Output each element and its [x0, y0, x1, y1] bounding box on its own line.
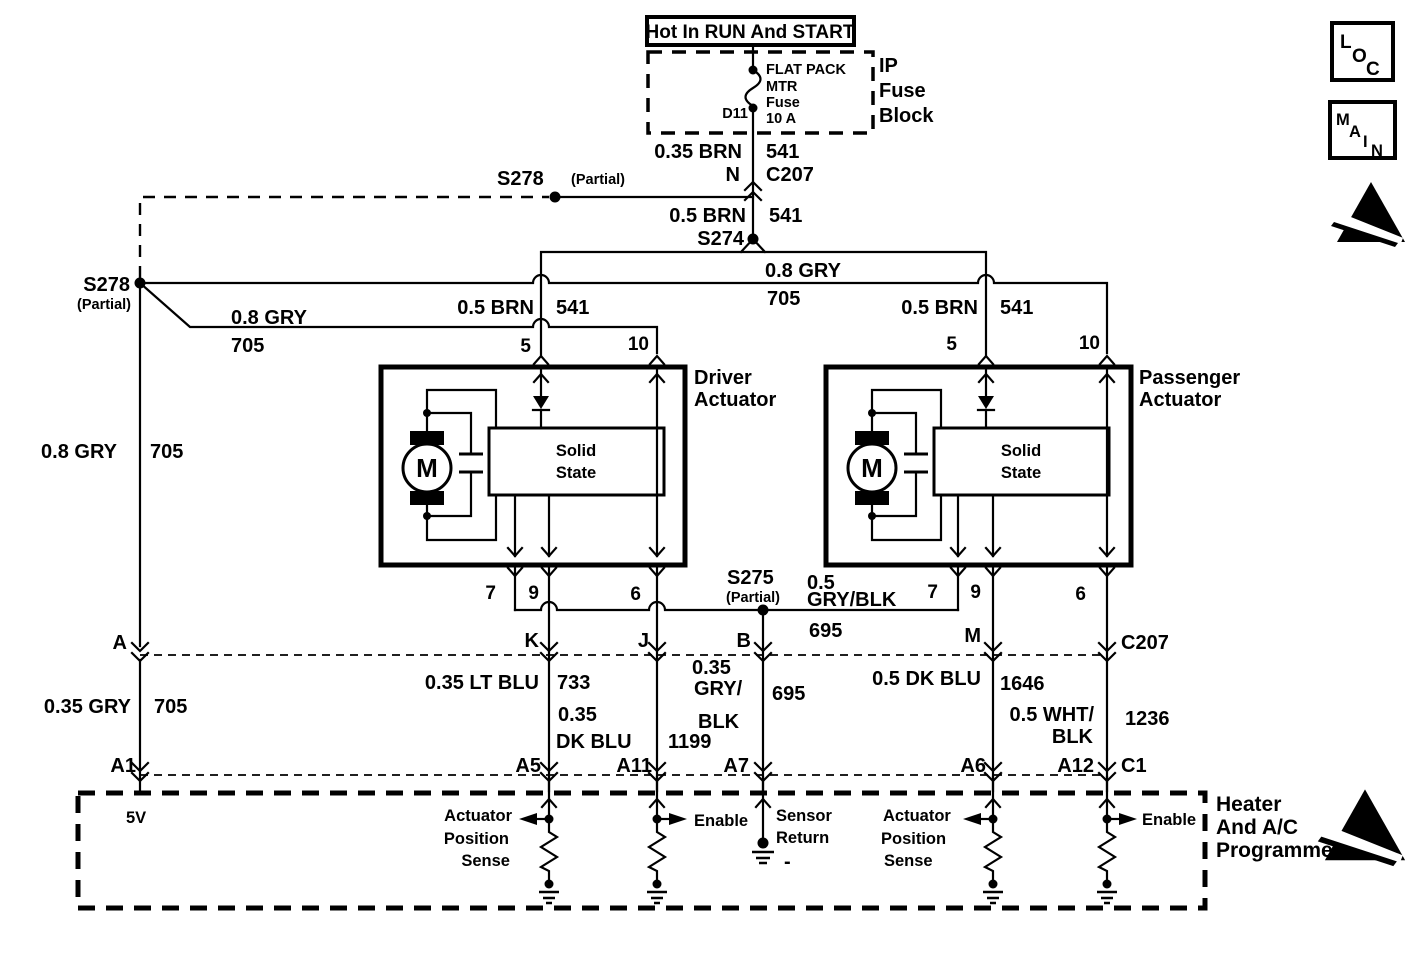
label-k-color: 0.35 LT BLU: [425, 672, 539, 694]
pass-pin7-label: 7: [927, 582, 938, 603]
pass-pin9-label: 9: [970, 582, 981, 603]
fuse-name-line2: MTR: [766, 79, 798, 95]
label-j-color1: 0.35: [558, 704, 597, 726]
label-08gry-left: 0.8 GRY: [41, 441, 118, 463]
label-m-color: 0.5 DK BLU: [872, 668, 981, 690]
label-b-color1: 0.35: [692, 657, 731, 679]
hot-in-run-label: Hot In RUN And START: [646, 22, 855, 43]
driver-pin5-connector: [534, 356, 548, 364]
pas-enable-arrow-icon: [1119, 813, 1137, 825]
pass-motor-letter: M: [861, 453, 883, 483]
label-s278-left: S278: [83, 274, 130, 296]
label-705-top: 705: [767, 288, 800, 310]
fuse-terminal-label: D11: [722, 106, 748, 122]
pass-actuator-name1: Passenger: [1139, 367, 1240, 389]
pas-sense-resistor-ground: [983, 819, 1003, 903]
pass-pin10-connector: [1100, 356, 1114, 364]
label-s278-left-partial: (Partial): [77, 297, 131, 313]
drv-sense-1: Actuator: [444, 807, 512, 825]
label-035gry: 0.35 GRY: [44, 696, 132, 718]
terminal-a11: A11: [616, 755, 652, 777]
driver-output-lines: [515, 495, 549, 556]
label-bus-color: GRY/BLK: [807, 589, 897, 611]
fuse-element-icon: [746, 70, 761, 106]
label-b-color3: BLK: [698, 711, 740, 733]
wiring-diagram-canvas: Hot In RUN And START FLAT PACK MTR Fuse …: [0, 0, 1427, 960]
label-05brn-driver: 0.5 BRN: [457, 297, 534, 319]
label-08gry-branch: 0.8 GRY: [231, 307, 308, 329]
driver-diode-icon: [533, 396, 549, 409]
fuse-name-line1: FLAT PACK: [766, 62, 847, 78]
pass-actuator-name2: Actuator: [1139, 389, 1221, 411]
label-terminal-n: N: [726, 164, 740, 186]
pass-output-lines: [958, 495, 993, 556]
label-05brn-pass: 0.5 BRN: [901, 297, 978, 319]
label-5v: 5V: [126, 809, 146, 827]
label-s274: S274: [697, 228, 745, 250]
terminal-a7: A7: [723, 755, 749, 777]
driver-pin10-label: 10: [628, 334, 649, 355]
pas-sense-1: Actuator: [883, 807, 951, 825]
main-icon: M A I N: [1330, 102, 1395, 160]
programmer-name2: And A/C: [1216, 816, 1298, 839]
driver-pin9-label: 9: [528, 583, 539, 604]
fuse-name-line3: Fuse: [766, 95, 800, 111]
prog-a7-node: [758, 838, 769, 849]
label-right-color2: BLK: [1052, 726, 1094, 748]
label-m-circuit: 1646: [1000, 673, 1045, 695]
label-705-left: 705: [150, 441, 183, 463]
label-c207-top: C207: [766, 164, 814, 186]
drv-sense-arrow-icon: [519, 813, 537, 825]
drv-sense-resistor-ground: [539, 819, 559, 903]
sensor-return-ground-icon: [752, 852, 774, 863]
wire-705-partial-dashed: [140, 197, 549, 278]
drv-sense-3: Sense: [461, 852, 510, 870]
label-s278-top: S278: [497, 168, 544, 190]
loc-letter-o: O: [1352, 46, 1367, 67]
pass-pin10-label: 10: [1079, 333, 1100, 354]
terminal-a12: A12: [1057, 755, 1094, 777]
pass-pin6-label: 6: [1075, 584, 1086, 605]
drv-enable-label: Enable: [694, 812, 748, 830]
label-j-color2: DK BLU: [556, 731, 632, 753]
fuse-name-line4: 10 A: [766, 111, 797, 127]
driver-solid-state-2: State: [556, 464, 596, 482]
pas-sense-arrow-icon: [963, 813, 981, 825]
esd-warning-icon-top: [1331, 182, 1405, 247]
programmer-outline: [78, 793, 1205, 908]
label-s275: S275: [727, 567, 774, 589]
driver-pin10-connector: [650, 356, 664, 364]
label-541-feed: 541: [769, 205, 802, 227]
pass-pin5-label: 5: [946, 334, 957, 355]
connector-c1-name: C1: [1121, 755, 1147, 777]
esd-warning-icon-bottom: [1318, 789, 1405, 866]
driver-solid-state-1: Solid: [556, 442, 596, 460]
loc-letter-c: C: [1366, 59, 1380, 80]
pass-solid-state-1: Solid: [1001, 442, 1041, 460]
label-541-driver: 541: [556, 297, 589, 319]
terminal-a: A: [113, 632, 127, 654]
terminal-j: J: [638, 630, 649, 652]
connector-c207-name: C207: [1121, 632, 1169, 654]
pass-pin5-connector: [979, 356, 993, 364]
terminal-a5: A5: [515, 755, 541, 777]
terminal-a1: A1: [110, 755, 136, 777]
label-705-lower: 705: [154, 696, 187, 718]
label-right-circuit: 1236: [1125, 708, 1170, 730]
pass-solid-state-2: State: [1001, 464, 1041, 482]
sensor-return-minus: -: [784, 851, 791, 873]
driver-pin6-label: 6: [630, 584, 641, 605]
wiring-diagram-page: Hot In RUN And START FLAT PACK MTR Fuse …: [0, 0, 1427, 960]
pas-enable-label: Enable: [1142, 811, 1196, 829]
label-705-branch: 705: [231, 335, 264, 357]
drv-enable-resistor-ground: [647, 819, 667, 903]
terminal-a6: A6: [960, 755, 986, 777]
label-541-pass: 541: [1000, 297, 1033, 319]
main-letter-n: N: [1371, 142, 1383, 160]
passenger-actuator-box: Passenger Actuator M Solid State: [826, 367, 1240, 565]
driver-actuator-box: Driver Actuator M Solid State: [381, 367, 776, 565]
label-b-circuit: 695: [772, 683, 805, 705]
driver-actuator-name1: Driver: [694, 367, 752, 389]
driver-pin5-label: 5: [520, 336, 531, 357]
loc-icon: L O C: [1332, 23, 1393, 80]
driver-solid-state-box: [489, 428, 664, 495]
label-541-top: 541: [766, 141, 799, 163]
pass-solid-state-box: [934, 428, 1109, 495]
drv-sense-2: Position: [444, 830, 509, 848]
label-b-color2: GRY/: [694, 678, 743, 700]
fuse-block-name2: Fuse: [879, 80, 926, 102]
pas-sense-2: Position: [881, 830, 946, 848]
terminal-k: K: [525, 630, 540, 652]
fuse-block-name3: Block: [879, 105, 934, 127]
main-letter-m: M: [1336, 111, 1350, 129]
label-s278-top-partial: (Partial): [571, 172, 625, 188]
sensor-return-2: Return: [776, 829, 829, 847]
label-05brn-feed: 0.5 BRN: [669, 205, 746, 227]
pass-capacitor-icon: [904, 454, 928, 472]
main-letter-i: I: [1363, 133, 1368, 151]
pass-diode-icon: [978, 396, 994, 409]
label-s275-partial: (Partial): [726, 590, 780, 606]
drv-enable-arrow-icon: [669, 813, 687, 825]
label-bus-circuit: 695: [809, 620, 842, 642]
driver-pin7-label: 7: [485, 583, 496, 604]
programmer-name1: Heater: [1216, 793, 1281, 816]
label-right-color1: 0.5 WHT/: [1010, 704, 1095, 726]
driver-actuator-name2: Actuator: [694, 389, 776, 411]
terminal-m: M: [964, 625, 981, 647]
driver-capacitor-icon: [459, 454, 483, 472]
label-035brn: 0.35 BRN: [654, 141, 742, 163]
fuse-block-name1: IP: [879, 55, 898, 77]
driver-motor-letter: M: [416, 453, 438, 483]
label-k-circuit: 733: [557, 672, 590, 694]
pas-enable-resistor-ground: [1097, 819, 1117, 903]
terminal-b: B: [737, 630, 751, 652]
label-j-circuit: 1199: [668, 731, 711, 753]
label-08gry-top: 0.8 GRY: [765, 260, 842, 282]
pas-sense-3: Sense: [884, 852, 933, 870]
loc-letter-l: L: [1340, 32, 1352, 53]
main-letter-a: A: [1349, 123, 1361, 141]
sensor-return-1: Sensor: [776, 807, 833, 825]
